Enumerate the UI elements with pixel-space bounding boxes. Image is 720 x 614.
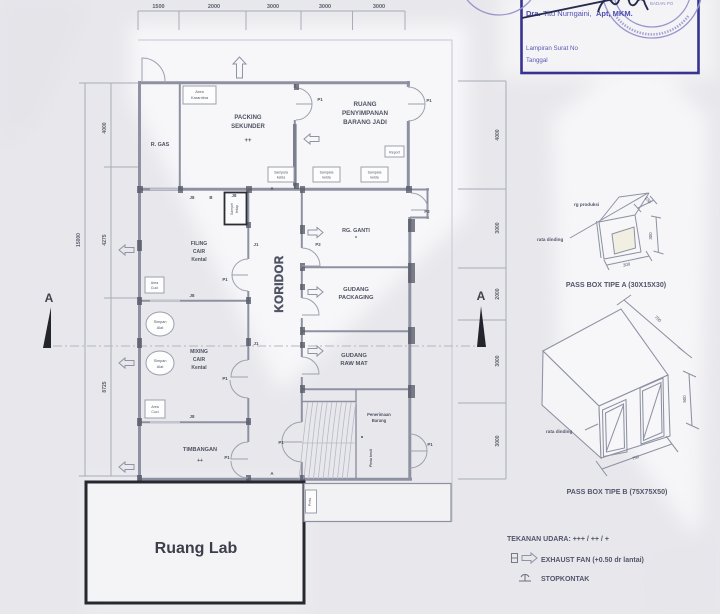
svg-text:Sampela: Sampela [320, 171, 334, 175]
svg-text:Karantina: Karantina [191, 95, 209, 100]
svg-text:3000: 3000 [373, 4, 385, 10]
svg-text:BARANG JADI: BARANG JADI [343, 119, 387, 126]
svg-text:Simpan: Simpan [154, 320, 167, 324]
svg-text:Kental: Kental [191, 257, 207, 263]
svg-text:Lampiran Surat No: Lampiran Surat No [526, 45, 578, 52]
svg-text:R. GAS: R. GAS [151, 142, 170, 148]
svg-text:rg produksi: rg produksi [574, 202, 599, 207]
svg-text:B: B [209, 195, 212, 200]
svg-text:Pintu kecil: Pintu kecil [369, 449, 373, 467]
svg-text:Sampela: Sampela [368, 171, 382, 175]
svg-text:J1: J1 [254, 242, 259, 247]
svg-text:STOPKONTAK: STOPKONTAK [541, 576, 589, 583]
svg-text:RG. GANTI: RG. GANTI [342, 228, 370, 234]
svg-text:P1: P1 [222, 376, 228, 381]
svg-text:J8: J8 [190, 414, 195, 419]
svg-text:Ruang Lab: Ruang Lab [155, 540, 238, 557]
svg-text:J8: J8 [232, 193, 237, 198]
svg-text:P1: P1 [224, 455, 230, 460]
svg-text:EXHAUST FAN (+0.50 dr lantai): EXHAUST FAN (+0.50 dr lantai) [541, 557, 644, 564]
svg-text:Sampel: Sampel [230, 203, 234, 215]
svg-text:J1: J1 [254, 341, 259, 346]
svg-text:Tanggal: Tanggal [526, 57, 548, 64]
svg-text:kelda: kelda [370, 176, 378, 180]
svg-text:3000: 3000 [495, 435, 501, 446]
svg-text:4275: 4275 [102, 234, 108, 245]
svg-text:RAW MAT: RAW MAT [340, 361, 368, 367]
svg-text:300: 300 [648, 232, 653, 240]
svg-text:kelda: kelda [277, 176, 285, 180]
svg-text:PENYIMPANAN: PENYIMPANAN [342, 110, 389, 117]
svg-text:Alat: Alat [157, 326, 164, 330]
svg-text:Sampela: Sampela [274, 171, 288, 175]
svg-text:Kental: Kental [191, 365, 207, 371]
svg-text:Alat: Alat [157, 365, 164, 369]
svg-text:P1: P1 [317, 97, 323, 102]
svg-text:500: 500 [682, 395, 687, 403]
svg-text:PACKAGING: PACKAGING [339, 295, 374, 301]
svg-text:15000: 15000 [76, 233, 82, 247]
svg-text:PASS BOX TIPE B (75X75X50): PASS BOX TIPE B (75X75X50) [567, 488, 668, 496]
svg-text:4000: 4000 [495, 129, 501, 140]
svg-text:P2: P2 [424, 209, 430, 214]
svg-text:MIXING: MIXING [190, 349, 208, 355]
svg-text:Cuci: Cuci [151, 410, 158, 414]
svg-text:3000: 3000 [319, 4, 331, 10]
svg-text:SEKUNDER: SEKUNDER [231, 124, 265, 130]
svg-text:Barang: Barang [372, 418, 387, 423]
svg-text:2000: 2000 [208, 4, 220, 10]
svg-text:Area: Area [151, 281, 159, 285]
svg-text:tetap: tetap [235, 205, 239, 213]
svg-text:3000: 3000 [495, 355, 501, 366]
svg-text:TIMBANGAN: TIMBANGAN [183, 447, 217, 453]
svg-text:Simpan: Simpan [154, 359, 167, 363]
svg-text:P1: P1 [427, 442, 433, 447]
svg-text:GUDANG: GUDANG [341, 353, 367, 359]
svg-text:Apt, MKM.: Apt, MKM. [596, 9, 633, 18]
svg-text:CAIR: CAIR [193, 249, 206, 255]
svg-text:RUANG: RUANG [353, 101, 376, 108]
svg-text:CAIR: CAIR [193, 357, 206, 363]
svg-text:rata dinding: rata dinding [546, 429, 572, 434]
svg-text:FILING: FILING [191, 241, 207, 247]
svg-text:BADAN PO: BADAN PO [650, 1, 674, 6]
svg-text:1500: 1500 [152, 4, 164, 10]
svg-text:rata dinding: rata dinding [537, 237, 563, 242]
svg-text:8725: 8725 [102, 381, 108, 392]
svg-text:J8: J8 [190, 195, 195, 200]
svg-text:Area: Area [151, 405, 159, 409]
svg-text:4000: 4000 [102, 122, 108, 133]
svg-text:J8: J8 [190, 293, 195, 298]
svg-text:A: A [45, 291, 54, 305]
svg-text:2000: 2000 [495, 288, 501, 299]
svg-text:3000: 3000 [495, 222, 501, 233]
svg-text:GUDANG: GUDANG [343, 287, 369, 293]
svg-text:TEKANAN UDARA: +++ / ++ / +: TEKANAN UDARA: +++ / ++ / + [507, 536, 609, 543]
svg-text:P1: P1 [278, 440, 284, 445]
svg-text:kelda: kelda [322, 176, 330, 180]
svg-text:Penerimaan: Penerimaan [367, 412, 391, 417]
svg-text:++: ++ [244, 138, 252, 144]
svg-text:Titu Nurngaini,: Titu Nurngaini, [543, 9, 592, 18]
svg-text:A: A [477, 289, 486, 303]
svg-text:P1: P1 [426, 98, 432, 103]
svg-text:P1: P1 [222, 277, 228, 282]
svg-text:Report: Report [389, 151, 400, 155]
svg-text:*: * [355, 236, 357, 242]
svg-text:++: ++ [197, 458, 203, 464]
svg-text:Cuci: Cuci [151, 286, 158, 290]
svg-text:Pintu: Pintu [308, 498, 312, 506]
svg-text:P2: P2 [315, 242, 321, 247]
svg-text:Area: Area [195, 89, 204, 94]
svg-text:3000: 3000 [267, 4, 279, 10]
svg-text:KORIDOR: KORIDOR [274, 255, 286, 312]
svg-text:PASS BOX TIPE A (30X15X30): PASS BOX TIPE A (30X15X30) [566, 281, 667, 289]
svg-text:PACKING: PACKING [234, 115, 262, 121]
